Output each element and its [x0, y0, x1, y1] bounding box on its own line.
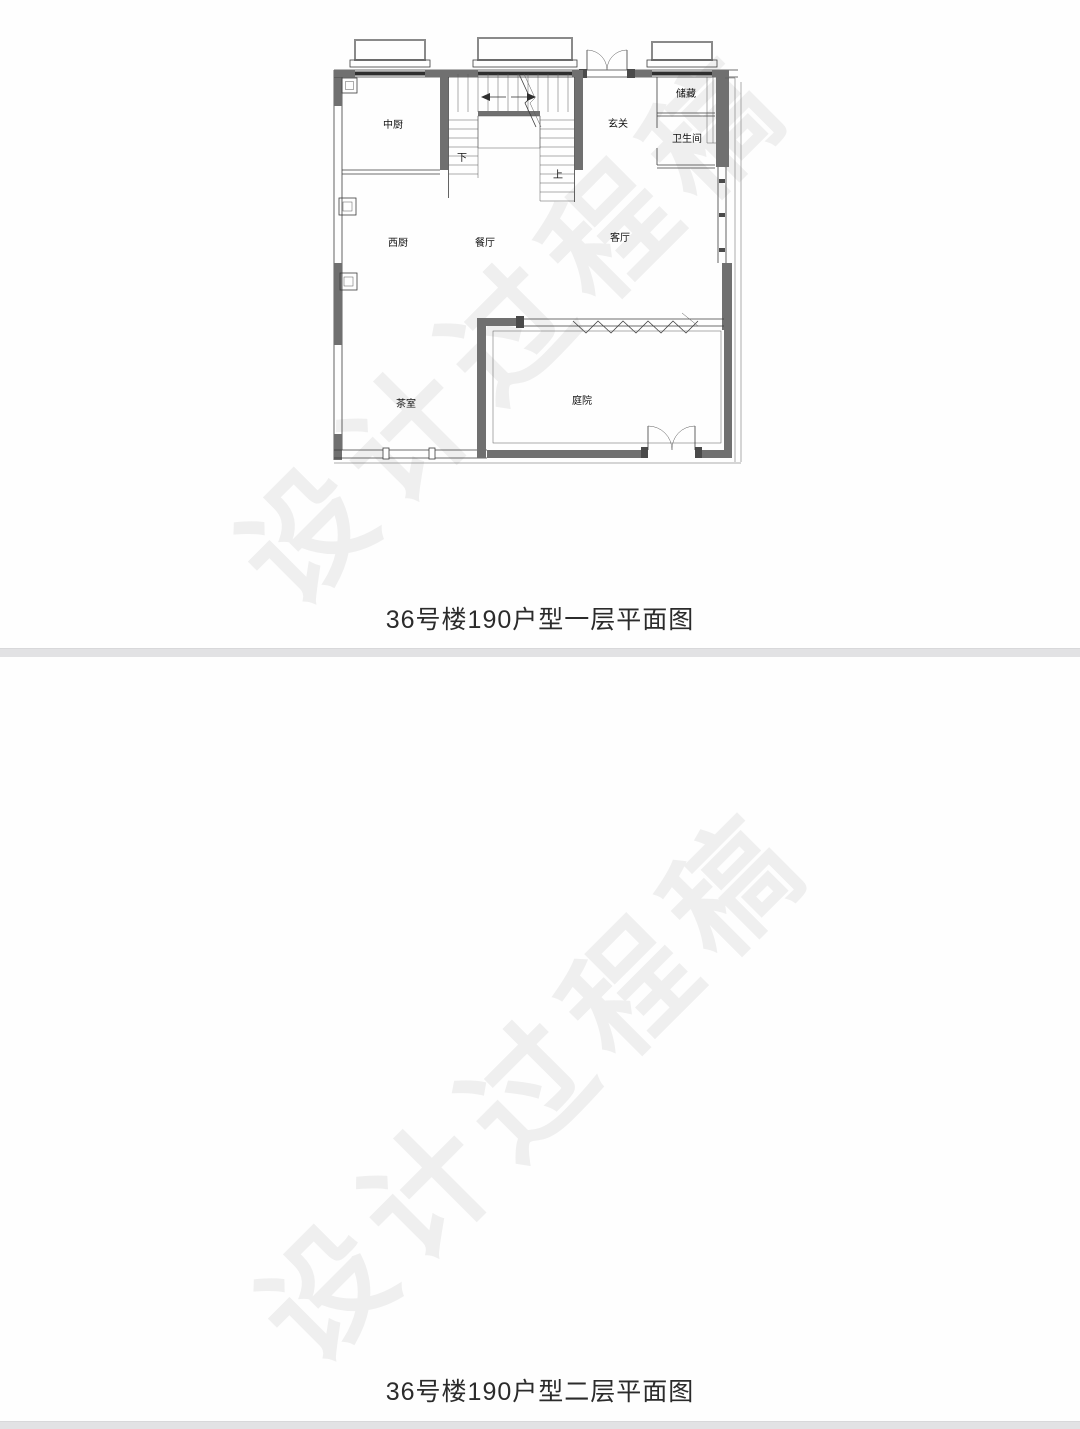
room-label-storage: 储藏 — [676, 87, 696, 100]
room-label-dining: 餐厅 — [475, 236, 495, 249]
room-label-chinese-kitchen: 中厨 — [383, 118, 403, 131]
watermark-text: 设计过程稿 — [211, 761, 845, 1395]
floor1-panel: 设计过程稿 — [0, 0, 1080, 648]
floor1-entry-door — [579, 50, 635, 78]
floor2-panel: 设计过程稿 — [0, 657, 1080, 1421]
room-label-living: 客厅 — [610, 231, 630, 244]
floor1-bay-windows — [350, 38, 717, 67]
floor1-caption: 36号楼190户型一层平面图 — [0, 600, 1080, 636]
room-label-courtyard: 庭院 — [572, 394, 592, 407]
floor1-staircase — [449, 74, 575, 202]
room-label-foyer: 玄关 — [608, 117, 628, 130]
room-label-bathroom: 卫生间 — [672, 132, 702, 145]
floor1-room-labels: 中厨 玄关 储藏 卫生间 西厨 餐厅 客厅 茶室 庭院 下 上 — [383, 87, 702, 410]
floor1-plan-drawing: 中厨 玄关 储藏 卫生间 西厨 餐厅 客厅 茶室 庭院 下 上 — [330, 30, 750, 480]
sheet-bottom-divider — [0, 1421, 1080, 1429]
drawing-sheet: 设计过程稿 — [0, 0, 1080, 1429]
stair-label-down: 下 — [457, 153, 467, 164]
stair-label-up: 上 — [553, 169, 563, 181]
room-label-tea-room: 茶室 — [396, 397, 416, 410]
floor2-caption: 36号楼190户型二层平面图 — [0, 1372, 1080, 1408]
room-label-western-kitchen: 西厨 — [388, 237, 408, 249]
